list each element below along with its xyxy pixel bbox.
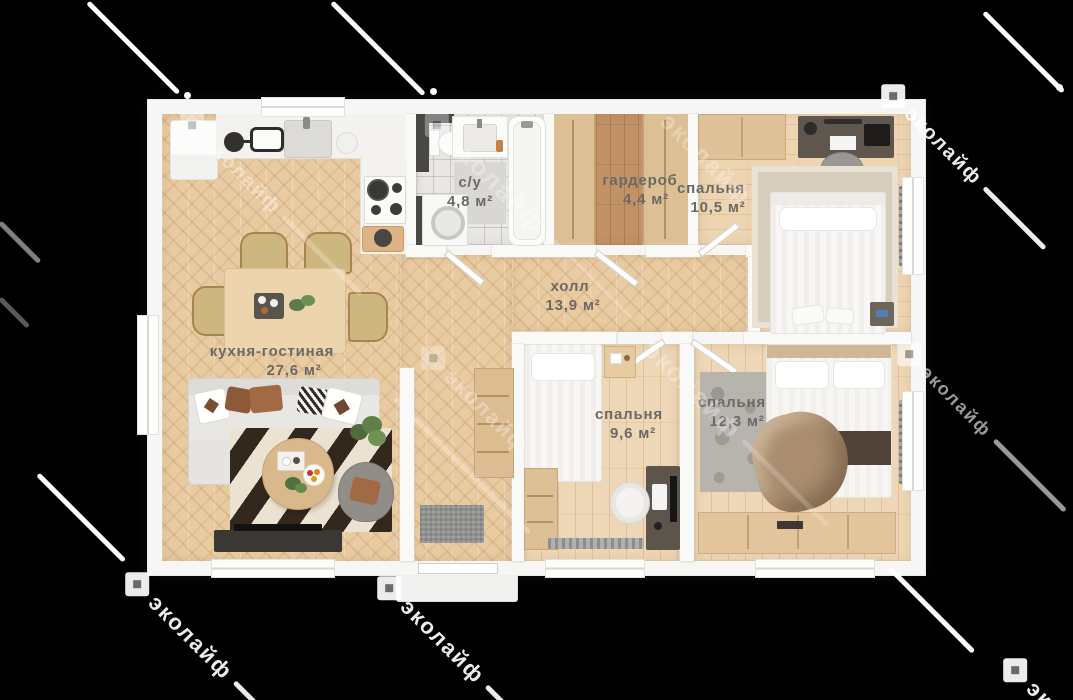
headboard bbox=[767, 345, 891, 358]
door-entrance bbox=[418, 563, 498, 574]
fridge bbox=[170, 120, 218, 180]
burner bbox=[371, 205, 381, 215]
monitor bbox=[670, 476, 677, 522]
tv-console bbox=[214, 530, 342, 552]
watermark-line bbox=[330, 1, 425, 96]
pillow-pattern bbox=[204, 398, 219, 413]
closet-rod bbox=[572, 120, 574, 239]
plate bbox=[270, 299, 278, 307]
table-plant bbox=[301, 295, 315, 306]
plane-model bbox=[824, 119, 862, 124]
label-kitchen-living: кухня-гостиная 27,6 м² bbox=[192, 343, 352, 381]
vanity-sink bbox=[463, 124, 497, 152]
serving-tray bbox=[254, 293, 284, 319]
room-name: кухня-гостиная bbox=[192, 343, 352, 362]
room-area: 13,9 м² bbox=[526, 297, 620, 316]
bed-pillow bbox=[775, 361, 829, 389]
stove bbox=[364, 176, 406, 224]
plant bbox=[350, 416, 388, 450]
fruit bbox=[307, 470, 313, 476]
window bbox=[756, 560, 874, 577]
table-tray bbox=[277, 451, 305, 471]
tub-inner bbox=[513, 122, 541, 240]
brand-text: эколайф bbox=[1021, 676, 1073, 700]
soap-bottle bbox=[496, 140, 503, 152]
divider bbox=[847, 515, 849, 549]
hall-console bbox=[474, 368, 514, 478]
wall-hall-top-2 bbox=[492, 245, 596, 257]
watermark-brand: эколайф bbox=[119, 566, 308, 700]
monitor bbox=[864, 124, 890, 146]
bathtub bbox=[508, 116, 546, 246]
watermark-dot bbox=[184, 92, 191, 99]
window bbox=[138, 316, 158, 434]
window bbox=[903, 392, 923, 490]
desk-item bbox=[654, 522, 662, 530]
wall-hall-bottom-2 bbox=[662, 332, 692, 344]
desk-lamp bbox=[804, 122, 817, 135]
wall-living-hall bbox=[400, 368, 414, 561]
fruit bbox=[314, 469, 320, 475]
brand-text: эколайф bbox=[917, 362, 997, 442]
drawer-line bbox=[527, 495, 553, 497]
side-table bbox=[604, 346, 636, 378]
bed-pillow bbox=[779, 207, 877, 231]
fruit bbox=[261, 307, 268, 314]
divider bbox=[747, 515, 749, 549]
sink-faucet bbox=[303, 117, 310, 129]
stove-pan bbox=[367, 179, 389, 201]
burner bbox=[392, 183, 402, 193]
bed-pillow bbox=[833, 361, 885, 389]
bed-pillow bbox=[531, 353, 595, 381]
toaster bbox=[250, 127, 284, 152]
watermark-dot bbox=[1056, 84, 1063, 91]
window bbox=[262, 98, 344, 116]
room-name: холл bbox=[520, 278, 620, 297]
watermark-dot bbox=[430, 88, 437, 95]
watermark-line bbox=[0, 221, 41, 264]
room-name: с/у bbox=[430, 174, 510, 193]
brand-text: эколайф bbox=[143, 590, 238, 685]
label-bathroom: с/у 4,8 м² bbox=[430, 174, 510, 212]
burner bbox=[390, 203, 402, 215]
tub-faucet bbox=[521, 121, 533, 128]
drawer-line bbox=[527, 521, 553, 523]
plate bbox=[258, 296, 266, 304]
nightstand-item bbox=[876, 310, 888, 317]
label-bedroom-middle: спальня 9,6 м² bbox=[579, 406, 679, 444]
room-name: спальня bbox=[680, 394, 784, 413]
bath-dark-wall bbox=[416, 120, 429, 172]
pillow-pattern bbox=[334, 399, 350, 415]
watermark-line bbox=[0, 297, 30, 329]
shelf-line bbox=[477, 451, 509, 453]
wall-bedroom-middle-right bbox=[680, 344, 694, 561]
dining-table bbox=[224, 268, 346, 354]
room-area: 9,6 м² bbox=[587, 425, 679, 444]
wall-hall-bottom-1 bbox=[512, 332, 616, 344]
room-name: спальня bbox=[579, 406, 679, 425]
shelf-line bbox=[477, 395, 509, 397]
window bbox=[903, 178, 923, 274]
label-bedroom-top: спальня 10,5 м² bbox=[659, 180, 763, 218]
pillow bbox=[349, 476, 381, 505]
floor-pillow bbox=[825, 307, 855, 326]
desk-chair bbox=[610, 482, 650, 524]
room-area: 10,5 м² bbox=[673, 199, 763, 218]
plant-leaf bbox=[368, 430, 386, 446]
wall-hall-top-3 bbox=[646, 245, 700, 257]
desk bbox=[646, 466, 680, 550]
room-area: 12,3 м² bbox=[690, 413, 784, 432]
fruit bbox=[311, 476, 317, 482]
room-area: 4,8 м² bbox=[430, 193, 510, 212]
brand-logo-icon bbox=[997, 652, 1034, 689]
divider bbox=[741, 117, 743, 157]
wall-hall-top-1 bbox=[406, 245, 446, 257]
table-item bbox=[624, 355, 630, 361]
laptop bbox=[652, 484, 667, 510]
coffee-table bbox=[262, 438, 334, 510]
radiator bbox=[548, 538, 644, 549]
cup bbox=[293, 457, 300, 464]
dining-chair bbox=[348, 292, 388, 342]
pan-icon bbox=[224, 132, 244, 152]
table-plant bbox=[295, 483, 307, 493]
watermark-line bbox=[36, 473, 126, 563]
table-item bbox=[610, 353, 622, 364]
bedroom-wardrobe bbox=[698, 114, 786, 160]
shelf-line bbox=[477, 423, 509, 425]
label-bedroom-right: спальня 12,3 м² bbox=[680, 394, 784, 432]
dresser-item bbox=[777, 521, 803, 529]
entrance-porch bbox=[396, 575, 518, 602]
dresser bbox=[698, 512, 896, 554]
floor-plan: кухня-гостиная 27,6 м² bbox=[148, 100, 925, 575]
vanity-faucet bbox=[477, 119, 482, 128]
fruit-plate bbox=[303, 464, 325, 486]
armchair bbox=[338, 462, 394, 522]
floorplan-render: кухня-гостиная 27,6 м² bbox=[0, 0, 1073, 700]
label-hall: холл 13,9 м² bbox=[520, 278, 620, 316]
brand-text: эколайф bbox=[395, 594, 490, 689]
headboard bbox=[771, 193, 885, 205]
paper bbox=[830, 136, 856, 150]
watermark-line bbox=[888, 567, 975, 654]
room-name: спальня bbox=[659, 180, 763, 199]
window bbox=[212, 560, 334, 577]
nightstand bbox=[870, 302, 894, 326]
tv bbox=[234, 524, 322, 531]
watermark-brand: эколайф bbox=[997, 652, 1073, 700]
doormat bbox=[420, 505, 484, 543]
bowl bbox=[336, 132, 358, 154]
cup bbox=[282, 457, 291, 466]
watermark-line bbox=[86, 1, 180, 95]
pot bbox=[374, 229, 392, 247]
wall-kitchen-bathroom bbox=[406, 114, 416, 257]
window bbox=[546, 560, 644, 577]
watermark-line bbox=[982, 11, 1065, 94]
pillow bbox=[249, 384, 284, 413]
